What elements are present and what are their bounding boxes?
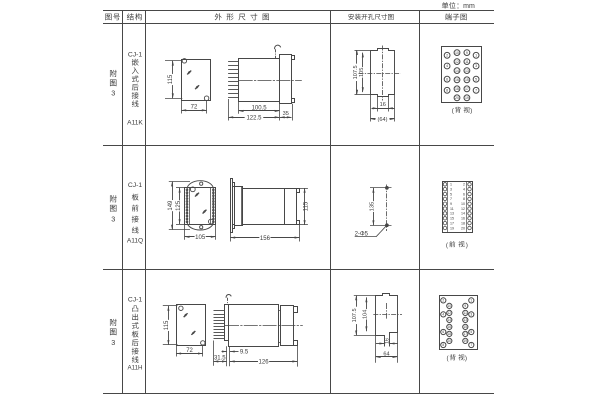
svg-text:16: 16 <box>380 102 386 108</box>
svg-text:A11K: A11K <box>127 120 143 127</box>
svg-text:100.5: 100.5 <box>252 105 268 111</box>
svg-text:15: 15 <box>465 78 469 82</box>
svg-text:13: 13 <box>465 69 469 73</box>
svg-text:107.5: 107.5 <box>352 308 358 322</box>
svg-text:6: 6 <box>463 192 465 196</box>
svg-text:1: 1 <box>450 183 452 187</box>
svg-text:8: 8 <box>446 89 448 93</box>
svg-text:115: 115 <box>168 74 174 84</box>
svg-text:126: 126 <box>259 360 270 366</box>
svg-text:3: 3 <box>450 187 452 191</box>
svg-text:107.5: 107.5 <box>353 65 359 79</box>
svg-text:2: 2 <box>446 54 448 58</box>
svg-text:(: ( <box>446 242 449 249</box>
svg-text:3: 3 <box>111 338 115 347</box>
svg-text:104: 104 <box>363 310 369 319</box>
svg-text:11: 11 <box>464 311 468 315</box>
svg-text:14: 14 <box>461 212 465 216</box>
svg-text:115: 115 <box>303 201 309 211</box>
svg-text:4: 4 <box>442 313 444 317</box>
svg-text:14: 14 <box>455 69 459 73</box>
svg-text:20: 20 <box>455 96 459 100</box>
svg-text:18: 18 <box>455 87 459 91</box>
svg-text:16: 16 <box>448 325 452 329</box>
svg-text:10: 10 <box>461 202 465 206</box>
svg-text:35: 35 <box>283 111 289 117</box>
svg-text:125: 125 <box>176 200 182 211</box>
svg-text:2: 2 <box>442 299 444 303</box>
svg-text:5: 5 <box>470 330 472 334</box>
svg-text:13: 13 <box>450 212 454 216</box>
svg-text:7: 7 <box>450 197 452 201</box>
svg-text:：mm: ：mm <box>456 3 475 10</box>
svg-text:19: 19 <box>464 339 468 343</box>
svg-text:CJ-1: CJ-1 <box>128 297 143 304</box>
svg-text:5: 5 <box>450 192 452 196</box>
svg-text:19: 19 <box>465 96 469 100</box>
svg-text:105: 105 <box>359 68 365 77</box>
svg-text:1: 1 <box>475 54 477 58</box>
svg-text:31.5: 31.5 <box>214 356 226 362</box>
svg-text:3: 3 <box>475 64 477 68</box>
svg-text:11: 11 <box>465 60 469 64</box>
svg-text:72: 72 <box>191 105 198 111</box>
svg-text:CJ-1: CJ-1 <box>128 182 143 189</box>
svg-text:11: 11 <box>450 207 454 211</box>
svg-text:4: 4 <box>463 187 465 191</box>
svg-text:72: 72 <box>186 348 193 354</box>
svg-text:149: 149 <box>168 200 174 211</box>
svg-text:CJ-1: CJ-1 <box>128 52 143 59</box>
svg-text:5: 5 <box>475 77 477 81</box>
svg-text:6: 6 <box>446 77 448 81</box>
svg-text:10: 10 <box>455 51 459 55</box>
svg-text:122.5: 122.5 <box>246 115 262 121</box>
svg-text:105: 105 <box>195 235 206 241</box>
svg-text:18: 18 <box>448 332 452 336</box>
svg-text:(: ( <box>447 355 450 362</box>
svg-text:18: 18 <box>461 221 465 225</box>
svg-text:7: 7 <box>470 343 472 347</box>
svg-text:3: 3 <box>470 313 472 317</box>
svg-text:12: 12 <box>448 311 452 315</box>
svg-text:14: 14 <box>448 318 452 322</box>
svg-text:1: 1 <box>470 299 472 303</box>
svg-text:(64): (64) <box>378 117 388 123</box>
svg-text:3: 3 <box>111 89 115 98</box>
svg-text:20: 20 <box>448 339 452 343</box>
svg-text:15: 15 <box>464 325 468 329</box>
svg-text:9: 9 <box>464 304 466 308</box>
svg-text:17: 17 <box>465 87 469 91</box>
svg-text:4: 4 <box>446 64 448 68</box>
svg-text:12: 12 <box>455 60 459 64</box>
svg-text:): ) <box>466 242 468 249</box>
svg-text:12: 12 <box>461 207 465 211</box>
svg-text:A11H: A11H <box>127 365 142 372</box>
svg-text:9: 9 <box>450 202 452 206</box>
svg-text:16: 16 <box>461 217 465 221</box>
svg-text:135: 135 <box>369 202 375 212</box>
svg-text:156: 156 <box>260 236 271 242</box>
svg-text:115: 115 <box>164 320 170 330</box>
svg-text:3: 3 <box>111 215 115 224</box>
svg-text:9: 9 <box>466 51 468 55</box>
svg-text:A11Q: A11Q <box>127 238 143 245</box>
svg-text:64: 64 <box>383 351 389 357</box>
svg-text:10: 10 <box>448 304 452 308</box>
svg-text:): ) <box>465 355 467 362</box>
svg-text:13: 13 <box>464 318 468 322</box>
svg-text:7: 7 <box>475 89 477 93</box>
svg-text:2: 2 <box>463 183 465 187</box>
svg-text:17: 17 <box>464 332 468 336</box>
svg-text:16: 16 <box>455 78 459 82</box>
svg-text:(: ( <box>452 108 455 115</box>
svg-text:6: 6 <box>442 330 444 334</box>
svg-text:8: 8 <box>442 343 444 347</box>
svg-text:20: 20 <box>461 226 465 230</box>
svg-text:8: 8 <box>463 197 465 201</box>
svg-text:19: 19 <box>450 226 454 230</box>
svg-text:16: 16 <box>384 338 390 344</box>
svg-text:2-Φ5: 2-Φ5 <box>355 231 369 237</box>
svg-text:9.5: 9.5 <box>240 350 249 356</box>
svg-text:17: 17 <box>450 221 454 225</box>
svg-text:15: 15 <box>450 217 454 221</box>
svg-text:): ) <box>470 108 472 115</box>
